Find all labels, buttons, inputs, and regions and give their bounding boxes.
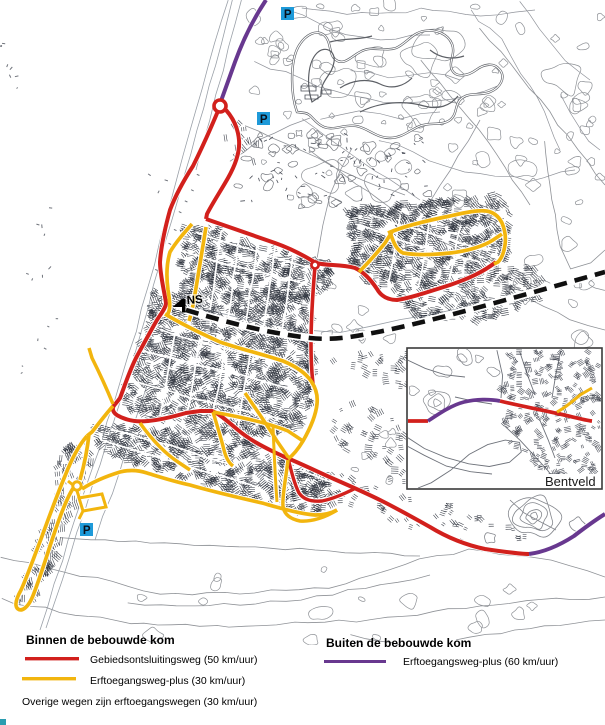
svg-text:P: P [260,114,268,126]
svg-text:P: P [284,9,292,21]
svg-text:Erftoegangsweg-plus (60 km/uur: Erftoegangsweg-plus (60 km/uur) [403,656,558,668]
svg-text:Gebiedsontsluitingsweg (50 km/: Gebiedsontsluitingsweg (50 km/uur) [90,654,258,666]
svg-text:Buiten de bebouwde kom: Buiten de bebouwde kom [326,636,471,650]
svg-text:Overige wegen zijn erftoegangs: Overige wegen zijn erftoegangswegen (30 … [22,696,257,708]
svg-text:P: P [83,525,91,537]
svg-text:Erftoegangsweg-plus (30 km/uur: Erftoegangsweg-plus (30 km/uur) [90,675,245,687]
svg-text:Binnen de bebouwde kom: Binnen de bebouwde kom [26,633,175,647]
svg-text:NS: NS [186,294,203,307]
svg-text:Bentveld: Bentveld [545,474,596,489]
